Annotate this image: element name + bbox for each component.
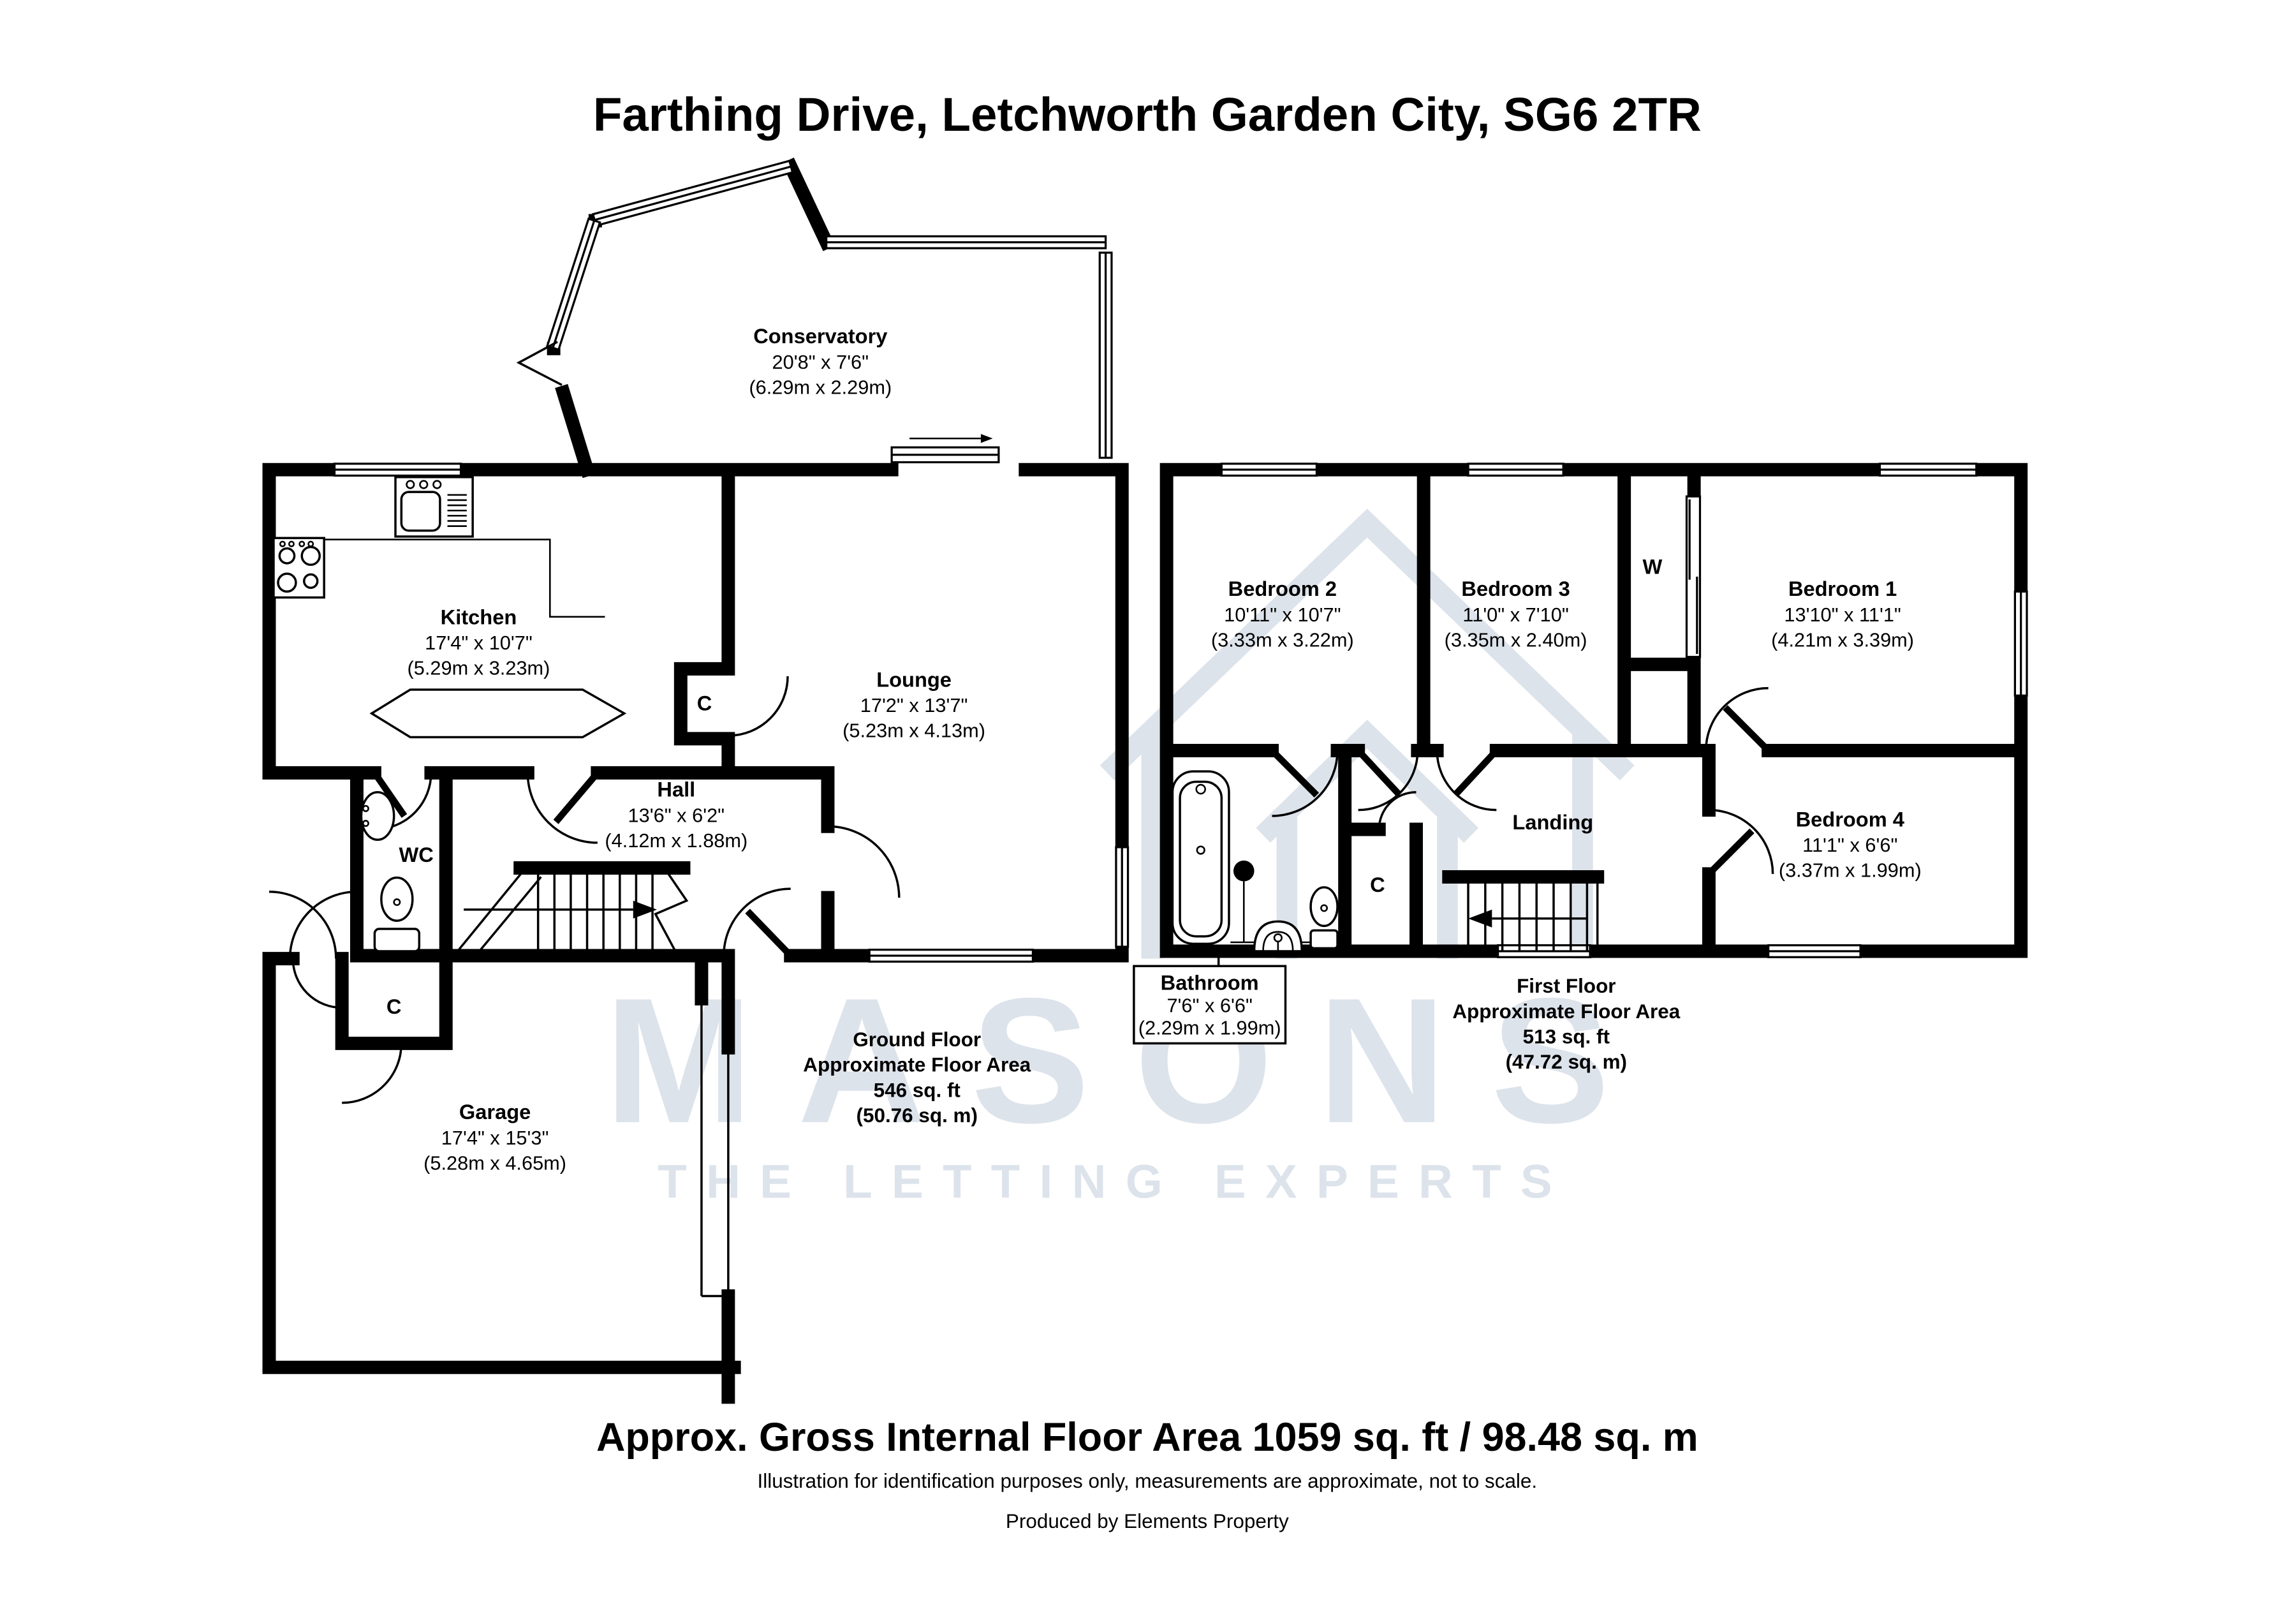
ground-floor-summary-2: Approximate Floor Area [803, 1054, 1031, 1076]
bathroom-metric: (2.29m x 1.99m) [1138, 1016, 1281, 1039]
bathroom-label: Bathroom [1161, 971, 1259, 995]
wc-toilet-icon [374, 878, 419, 951]
lounge-imperial: 17'2" x 13'7" [860, 694, 968, 716]
bathtub-icon [1172, 771, 1229, 944]
first-floor-summary-1: First Floor [1517, 975, 1615, 997]
bedroom1-label: Bedroom 1 [1788, 577, 1897, 600]
wardrobe-label: W [1643, 554, 1663, 578]
hall-label: Hall [657, 778, 695, 801]
bedroom4-imperial: 11'1" x 6'6" [1802, 834, 1897, 856]
bedroom2-label: Bedroom 2 [1228, 577, 1337, 600]
watermark-brand: MASONS [605, 961, 1654, 1160]
watermark-tagline: THE LETTING EXPERTS [658, 1155, 1571, 1208]
ground-floor-summary-4: (50.76 sq. m) [857, 1104, 978, 1127]
gross-area-line: Approx. Gross Internal Floor Area 1059 s… [596, 1415, 1698, 1460]
hall-lounge-door [828, 826, 899, 898]
bedroom1-imperial: 13'10" x 11'1" [1784, 604, 1901, 626]
porch-door-right [290, 892, 357, 959]
bedroom3-imperial: 11'0" x 7'10" [1462, 604, 1568, 626]
stairs-break-symbol [656, 868, 687, 956]
disclaimer-line: Illustration for identification purposes… [758, 1470, 1538, 1492]
floorplan-page: MASONS THE LETTING EXPERTS Farthing Driv… [0, 0, 2296, 1623]
bedroom3-metric: (3.35m x 2.40m) [1445, 628, 1587, 651]
ground-floor-summary-3: 546 sq. ft [874, 1079, 961, 1101]
kitchen-label: Kitchen [441, 605, 517, 628]
lounge-closet-door [728, 676, 788, 736]
landing-closet-label: C [1370, 873, 1385, 896]
produced-by-line: Produced by Elements Property [1006, 1510, 1289, 1532]
stairs-down-arrow-icon [1468, 910, 1492, 928]
bathroom-toilet-icon [1311, 887, 1337, 949]
footer: Approx. Gross Internal Floor Area 1059 s… [596, 1415, 1698, 1532]
kitchen-table [372, 690, 624, 737]
kitchen-metric: (5.29m x 3.23m) [408, 657, 550, 679]
garage-metric: (5.28m x 4.65m) [423, 1152, 566, 1174]
bathroom-sink-icon [1255, 921, 1302, 951]
bedroom3-label: Bedroom 3 [1461, 577, 1570, 600]
kitchen-imperial: 17'4" x 10'7" [425, 632, 533, 654]
wardrobe-sliding-door [1687, 496, 1700, 657]
bathroom-label-box: Bathroom 7'6" x 6'6" (2.29m x 1.99m) [1134, 951, 1286, 1043]
entrance-closet-label: C [386, 995, 402, 1018]
entrance-closet-door [342, 1043, 401, 1102]
wc-label: WC [399, 843, 433, 866]
lounge-closet-label: C [697, 692, 712, 715]
kitchen-sink-icon [395, 477, 473, 537]
conservatory-metric: (6.29m x 2.29m) [749, 376, 892, 398]
staircase-ground [457, 868, 687, 956]
garage-label: Garage [459, 1100, 531, 1123]
lounge-label: Lounge [876, 667, 952, 691]
ground-floor-plan: Conservatory 20'8" x 7'6" (6.29m x 2.29m… [269, 161, 1128, 1397]
hall-imperial: 13'6" x 6'2" [628, 804, 725, 826]
conservatory-side-window [547, 219, 600, 350]
hall-metric: (4.12m x 1.88m) [605, 829, 747, 852]
bathroom-imperial: 7'6" x 6'6" [1166, 995, 1252, 1017]
porch-door-left [269, 892, 336, 959]
first-floor-summary-3: 513 sq. ft [1523, 1025, 1610, 1048]
header: Farthing Drive, Letchworth Garden City, … [593, 88, 1702, 141]
patio-sliding-door [892, 434, 999, 462]
lounge-metric: (5.23m x 4.13m) [843, 720, 985, 742]
conservatory-structure [519, 161, 1112, 470]
first-floor-summary-2: Approximate Floor Area [1452, 1000, 1680, 1023]
ground-floor-summary-1: Ground Floor [853, 1028, 981, 1051]
bedroom4-metric: (3.37m x 1.99m) [1779, 859, 1922, 882]
page-title: Farthing Drive, Letchworth Garden City, … [593, 88, 1702, 141]
garage-imperial: 17'4" x 15'3" [441, 1127, 549, 1149]
bedroom4-label: Bedroom 4 [1796, 807, 1904, 831]
kitchen-stove-icon [274, 538, 324, 597]
conservatory-imperial: 20'8" x 7'6" [772, 351, 869, 373]
wc-sink-icon [361, 792, 394, 840]
bedroom1-metric: (4.21m x 3.39m) [1771, 628, 1914, 651]
bedroom2-imperial: 10'11" x 10'7" [1224, 604, 1341, 626]
bedroom2-metric: (3.33m x 3.22m) [1211, 628, 1354, 651]
first-floor-summary-4: (47.72 sq. m) [1506, 1051, 1627, 1073]
landing-label: Landing [1512, 810, 1593, 834]
shower-head-icon [1233, 861, 1255, 882]
watermark: MASONS THE LETTING EXPERTS [605, 523, 1654, 1208]
garage-door [293, 959, 342, 1008]
conservatory-label: Conservatory [753, 324, 887, 348]
conservatory-bay-window [593, 161, 793, 226]
floorplan-svg: MASONS THE LETTING EXPERTS Farthing Driv… [0, 0, 2296, 1623]
